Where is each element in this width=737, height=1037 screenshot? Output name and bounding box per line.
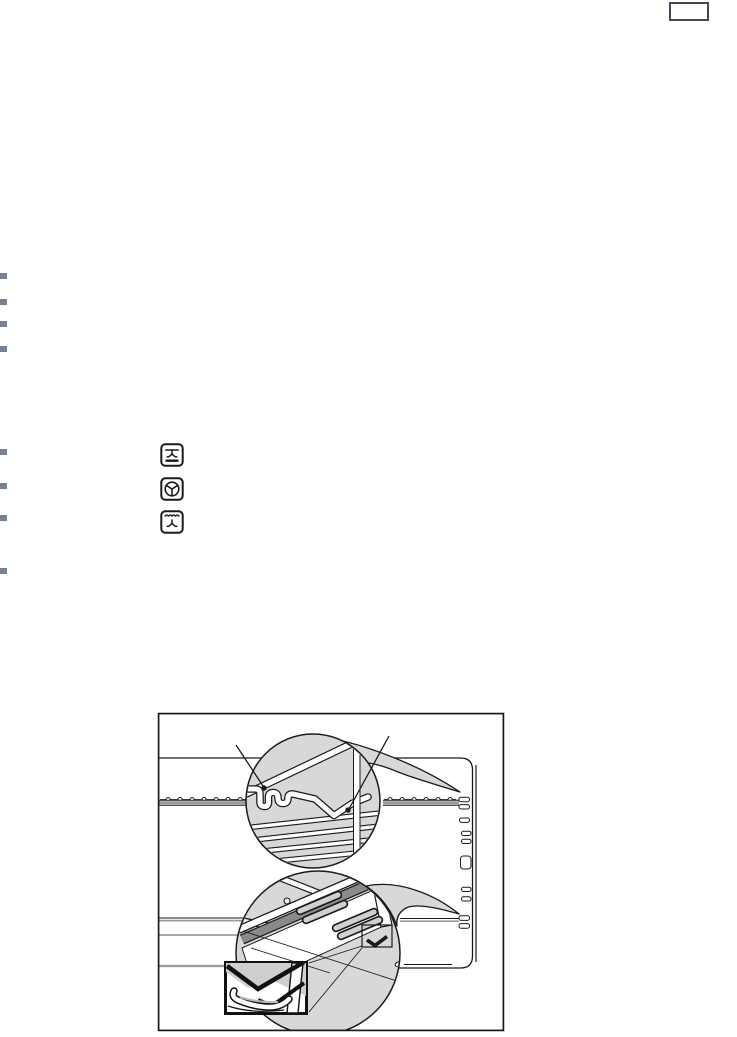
list-bullet [0,273,7,279]
list-bullet [0,449,7,455]
list-bullet [0,299,7,305]
figure-svg [157,712,505,1032]
callout-dot [345,807,350,812]
list-bullet [0,483,7,489]
fan-with-top-and-bottom-heat-icon [160,443,184,467]
list-bullet [0,515,7,521]
grill-with-fan-icon [160,510,184,534]
side-wall-tabs [459,797,471,928]
manual-page: { "page": { "width": 737, "height": 1035… [0,0,737,1035]
list-bullet [0,321,7,327]
list-bullet [0,346,7,352]
page-number-box [669,2,709,21]
list-bullet [0,568,7,574]
callout-dot [261,785,266,790]
hot-air-fan-icon [160,477,184,501]
oven-shelf-runner-illustration [157,712,505,1032]
detail-inset-box [226,962,307,1014]
